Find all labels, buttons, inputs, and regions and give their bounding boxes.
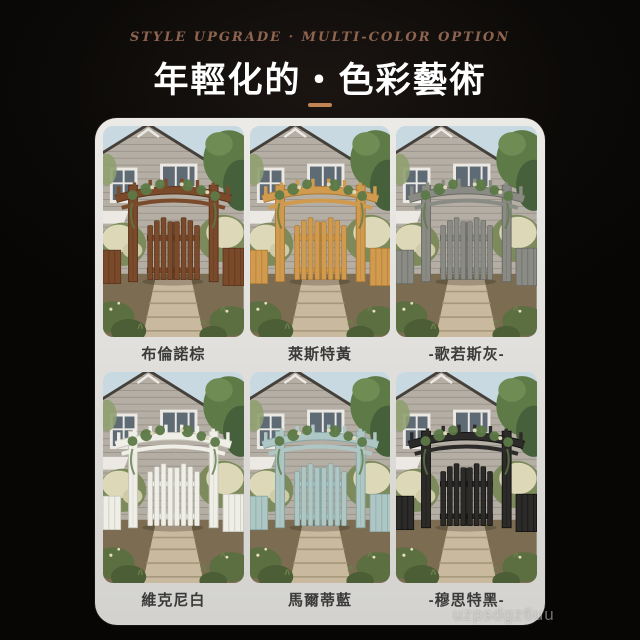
garden-arch-photo bbox=[396, 372, 537, 583]
garden-arch-photo bbox=[250, 372, 391, 583]
color-tile: 萊斯特黃 bbox=[250, 126, 391, 372]
color-tile: 布倫諾棕 bbox=[103, 126, 244, 372]
garden-arch-photo bbox=[250, 126, 391, 337]
garden-arch-photo bbox=[396, 126, 537, 337]
color-tile: -歌若斯灰- bbox=[396, 126, 537, 372]
tile-label: 布倫諾棕 bbox=[103, 337, 244, 372]
color-grid: 布倫諾棕 bbox=[103, 126, 537, 618]
color-options-card: 布倫諾棕 bbox=[95, 118, 545, 625]
watermark-text: uzpsdgz6uu bbox=[453, 605, 555, 625]
color-tile: -穆思特黑- bbox=[396, 372, 537, 618]
promo-image: STYLE UPGRADE · MULTI-COLOR OPTION 年輕化的・… bbox=[0, 0, 640, 640]
accent-dash bbox=[308, 103, 332, 107]
garden-arch-photo bbox=[103, 372, 244, 583]
color-tile: 馬爾蒂藍 bbox=[250, 372, 391, 618]
page-title: 年輕化的・色彩藝術 bbox=[0, 52, 640, 103]
garden-arch-photo bbox=[103, 126, 244, 337]
tile-label: 馬爾蒂藍 bbox=[250, 583, 391, 618]
tile-label: -歌若斯灰- bbox=[396, 337, 537, 372]
tile-label: 維克尼白 bbox=[103, 583, 244, 618]
tile-label: 萊斯特黃 bbox=[250, 337, 391, 372]
tagline-text: STYLE UPGRADE · MULTI-COLOR OPTION bbox=[0, 30, 640, 45]
color-tile: 維克尼白 bbox=[103, 372, 244, 618]
